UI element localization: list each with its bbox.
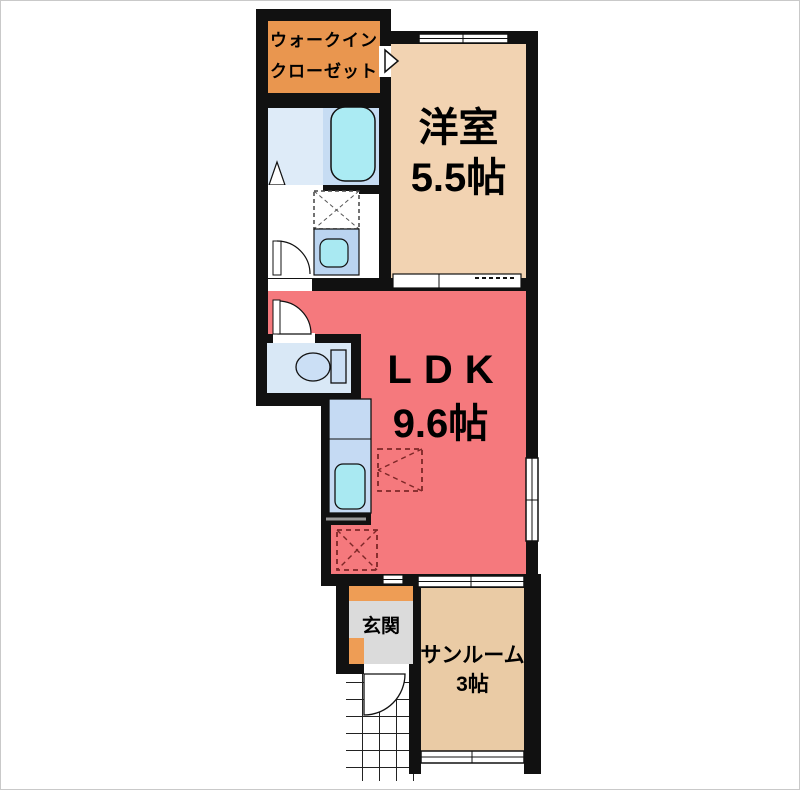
- sunroom-name: サンルーム: [415, 641, 530, 670]
- washing-machine-pan-icon: [314, 191, 359, 229]
- folding-bath-door-icon: [269, 162, 285, 185]
- refrigerator-space-marker: [337, 530, 377, 570]
- western-room-name: 洋室: [391, 103, 526, 153]
- window-sunroom-top: [418, 576, 524, 587]
- western-room-label: 洋室 5.5帖: [391, 103, 526, 203]
- storage-space-marker: [378, 449, 422, 491]
- window-western-room-top: [419, 34, 508, 43]
- ldk-label: LDK 9.6帖: [353, 343, 528, 451]
- entrance-door: [364, 664, 409, 715]
- bathtub-icon: [331, 107, 375, 181]
- walk-in-closet-label: ウォークイン クローゼット: [268, 26, 380, 87]
- floor-plan: ウォークイン クローゼット 洋室 5.5帖 LDK 9.6帖 玄関 サンルーム …: [0, 0, 800, 790]
- window-ldk-right: [526, 458, 538, 541]
- sunroom-size: 3帖: [415, 670, 530, 699]
- kitchen-sink-icon: [335, 464, 365, 509]
- closet-door: [379, 46, 398, 77]
- toilet-icon: [296, 350, 346, 383]
- ldk-name: LDK: [365, 343, 528, 397]
- sunroom-label: サンルーム 3帖: [415, 641, 530, 700]
- ldk-size: 9.6帖: [353, 397, 528, 451]
- toilet-door: [273, 300, 315, 343]
- walk-in-closet-label-line2: クローゼット: [268, 57, 380, 88]
- door-swing-triangle-icon: [385, 50, 398, 72]
- window-ldk-bottom-small: [383, 575, 403, 584]
- washroom-door: [268, 241, 312, 291]
- sliding-door-western-ldk: [393, 274, 521, 288]
- washbasin-icon: [314, 229, 359, 275]
- entrance-name: 玄関: [349, 615, 413, 640]
- kitchen-shelf: [321, 513, 371, 525]
- walk-in-closet-label-line1: ウォークイン: [268, 26, 380, 57]
- entrance-label: 玄関: [349, 615, 413, 640]
- western-room-size: 5.5帖: [391, 153, 526, 203]
- window-sunroom-bottom: [421, 751, 524, 775]
